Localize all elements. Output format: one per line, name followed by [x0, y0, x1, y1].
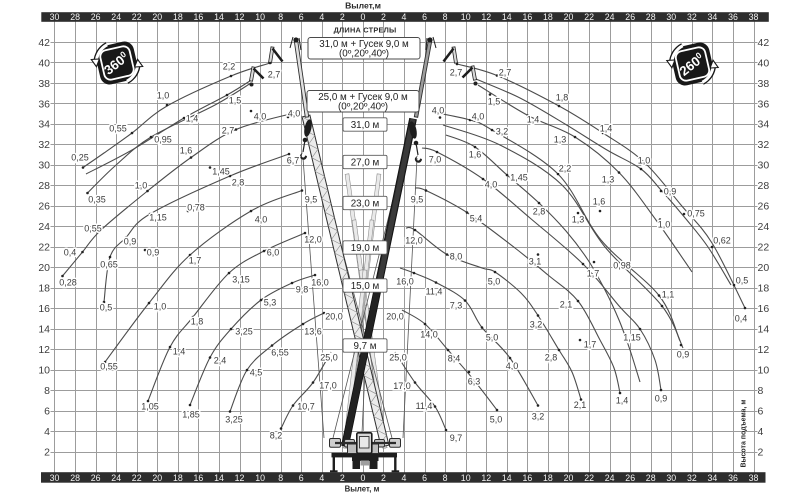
svg-text:40: 40 [758, 57, 770, 69]
svg-text:4: 4 [758, 426, 764, 438]
svg-text:5,3: 5,3 [264, 297, 277, 307]
svg-text:17,0: 17,0 [319, 380, 337, 390]
svg-text:3,15: 3,15 [232, 274, 250, 284]
svg-text:Вылет, м: Вылет, м [345, 485, 380, 494]
svg-text:31,0 м: 31,0 м [351, 120, 380, 131]
svg-text:4,0: 4,0 [506, 361, 519, 371]
svg-text:1,4: 1,4 [173, 346, 186, 356]
svg-text:28: 28 [38, 180, 50, 192]
svg-text:(0º,20º,40º): (0º,20º,40º) [339, 49, 389, 60]
svg-text:32: 32 [687, 473, 697, 483]
svg-text:36: 36 [728, 12, 738, 22]
svg-text:27,0 м: 27,0 м [351, 158, 380, 169]
svg-text:1,45: 1,45 [510, 172, 528, 182]
svg-text:12,0: 12,0 [304, 234, 322, 244]
svg-text:1,3: 1,3 [554, 134, 567, 144]
svg-text:1,8: 1,8 [556, 92, 569, 102]
svg-text:6: 6 [299, 473, 304, 483]
svg-text:28: 28 [646, 473, 656, 483]
svg-text:26: 26 [625, 12, 635, 22]
svg-text:20,0: 20,0 [386, 311, 404, 321]
svg-text:10: 10 [255, 12, 265, 22]
svg-text:2,8: 2,8 [533, 206, 546, 216]
svg-text:30: 30 [38, 160, 50, 172]
svg-text:0,5: 0,5 [736, 275, 749, 285]
svg-text:24: 24 [605, 12, 615, 22]
svg-text:10: 10 [38, 365, 50, 377]
svg-text:16: 16 [38, 303, 50, 315]
svg-text:12: 12 [38, 344, 50, 356]
svg-text:0,55: 0,55 [100, 361, 118, 371]
svg-text:32: 32 [758, 139, 770, 151]
svg-text:26: 26 [91, 473, 101, 483]
svg-text:16,0: 16,0 [396, 276, 414, 286]
svg-text:18: 18 [758, 283, 770, 295]
svg-text:5,0: 5,0 [486, 332, 499, 342]
svg-text:12: 12 [481, 473, 491, 483]
svg-text:4,0: 4,0 [255, 214, 268, 224]
svg-text:2,1: 2,1 [574, 400, 587, 410]
svg-text:14: 14 [214, 12, 224, 22]
svg-text:1,4: 1,4 [600, 123, 613, 133]
svg-text:20: 20 [564, 473, 574, 483]
svg-text:20: 20 [564, 12, 574, 22]
svg-text:11,4: 11,4 [426, 286, 443, 296]
svg-text:0,28: 0,28 [59, 277, 77, 287]
svg-text:22: 22 [758, 242, 770, 254]
svg-text:2,8: 2,8 [232, 177, 245, 187]
svg-text:0,55: 0,55 [109, 123, 127, 133]
svg-text:1,1: 1,1 [662, 289, 675, 299]
svg-text:2,7: 2,7 [268, 69, 281, 79]
svg-text:5,0: 5,0 [490, 414, 503, 424]
svg-text:1,0: 1,0 [154, 301, 167, 311]
svg-text:8: 8 [758, 385, 764, 397]
svg-text:15,0 м: 15,0 м [351, 281, 380, 292]
svg-text:1,15: 1,15 [623, 332, 641, 342]
svg-text:14,0: 14,0 [420, 329, 438, 339]
svg-text:34: 34 [758, 119, 770, 131]
svg-text:0,75: 0,75 [687, 208, 705, 218]
svg-text:22: 22 [132, 12, 142, 22]
svg-text:14: 14 [38, 324, 50, 336]
svg-text:6: 6 [44, 406, 50, 418]
svg-text:9,5: 9,5 [305, 194, 318, 204]
svg-text:1,4: 1,4 [186, 113, 199, 123]
svg-text:16: 16 [758, 303, 770, 315]
svg-text:1,6: 1,6 [469, 149, 482, 159]
svg-text:8: 8 [443, 12, 448, 22]
svg-text:4,0: 4,0 [485, 179, 498, 189]
svg-text:10: 10 [461, 12, 471, 22]
svg-text:20: 20 [152, 12, 162, 22]
svg-text:28: 28 [646, 12, 656, 22]
svg-text:4,0: 4,0 [432, 105, 445, 115]
svg-text:16: 16 [194, 473, 204, 483]
svg-text:2: 2 [340, 473, 345, 483]
svg-text:18: 18 [543, 473, 553, 483]
svg-text:1,3: 1,3 [602, 174, 615, 184]
svg-text:9,7: 9,7 [450, 433, 463, 443]
svg-text:1,45: 1,45 [212, 166, 230, 176]
svg-text:0,95: 0,95 [154, 134, 172, 144]
svg-text:1,3: 1,3 [572, 214, 585, 224]
svg-text:16: 16 [194, 12, 204, 22]
svg-text:4,0: 4,0 [472, 111, 485, 121]
svg-text:25,0: 25,0 [320, 352, 338, 362]
svg-text:8: 8 [443, 473, 448, 483]
svg-text:0,9: 0,9 [147, 247, 160, 257]
svg-text:0,62: 0,62 [713, 235, 731, 245]
svg-text:20: 20 [758, 262, 770, 274]
svg-text:0,78: 0,78 [187, 202, 205, 212]
svg-text:10: 10 [758, 365, 770, 377]
svg-text:0,4: 0,4 [64, 247, 77, 257]
svg-text:25,0: 25,0 [389, 352, 407, 362]
svg-text:1,7: 1,7 [587, 268, 600, 278]
svg-text:42: 42 [38, 37, 50, 49]
svg-text:2,2: 2,2 [559, 163, 572, 173]
svg-text:7,0: 7,0 [429, 154, 442, 164]
svg-text:2: 2 [44, 446, 50, 458]
svg-text:30: 30 [50, 12, 60, 22]
svg-text:1,7: 1,7 [584, 339, 597, 349]
svg-text:0,65: 0,65 [100, 259, 118, 269]
svg-text:22: 22 [38, 242, 50, 254]
svg-text:20: 20 [38, 262, 50, 274]
svg-text:1,7: 1,7 [189, 255, 202, 265]
svg-text:3,1: 3,1 [529, 256, 542, 266]
svg-text:1,5: 1,5 [488, 96, 501, 106]
svg-text:22: 22 [584, 473, 594, 483]
svg-text:6: 6 [758, 406, 764, 418]
svg-text:2,8: 2,8 [545, 352, 558, 362]
svg-text:10: 10 [461, 473, 471, 483]
svg-text:3,2: 3,2 [530, 319, 543, 329]
svg-text:14: 14 [214, 473, 224, 483]
svg-text:0,5: 0,5 [100, 302, 113, 312]
svg-text:5,4: 5,4 [470, 213, 483, 223]
svg-text:6,3: 6,3 [468, 376, 481, 386]
svg-text:42: 42 [758, 37, 770, 49]
svg-text:38: 38 [749, 473, 759, 483]
svg-text:3,25: 3,25 [235, 326, 253, 336]
svg-text:16,0: 16,0 [311, 277, 329, 287]
svg-text:3,2: 3,2 [496, 126, 509, 136]
svg-text:2,7: 2,7 [222, 125, 235, 135]
svg-text:20,0: 20,0 [325, 311, 343, 321]
svg-text:8,0: 8,0 [450, 251, 463, 261]
svg-text:30: 30 [758, 160, 770, 172]
svg-text:12: 12 [758, 344, 770, 356]
svg-text:2: 2 [340, 12, 345, 22]
svg-text:2: 2 [381, 473, 386, 483]
svg-text:26: 26 [91, 12, 101, 22]
svg-text:2,4: 2,4 [214, 355, 227, 365]
svg-text:14: 14 [502, 473, 512, 483]
svg-text:38: 38 [749, 12, 759, 22]
svg-text:0,9: 0,9 [677, 349, 690, 359]
svg-text:14: 14 [758, 324, 770, 336]
svg-text:23,0 м: 23,0 м [351, 199, 380, 210]
svg-text:6: 6 [422, 473, 427, 483]
svg-text:10: 10 [255, 473, 265, 483]
svg-text:1,4: 1,4 [527, 114, 540, 124]
svg-text:19,0 м: 19,0 м [351, 243, 380, 254]
svg-text:4,0: 4,0 [288, 108, 301, 118]
svg-text:8,4: 8,4 [448, 353, 461, 363]
svg-text:0,4: 0,4 [735, 313, 748, 323]
svg-text:38: 38 [758, 78, 770, 90]
svg-text:4,0: 4,0 [254, 111, 267, 121]
svg-text:18: 18 [38, 283, 50, 295]
svg-text:1,6: 1,6 [593, 196, 606, 206]
svg-text:24: 24 [758, 221, 770, 233]
svg-text:2: 2 [758, 446, 764, 458]
svg-text:0: 0 [360, 473, 365, 483]
svg-text:4,5: 4,5 [250, 367, 263, 377]
svg-text:3,2: 3,2 [532, 411, 545, 421]
svg-text:12: 12 [235, 12, 245, 22]
svg-text:14: 14 [502, 12, 512, 22]
svg-text:18: 18 [173, 12, 183, 22]
svg-text:32: 32 [38, 139, 50, 151]
svg-text:16: 16 [523, 12, 533, 22]
svg-text:1,85: 1,85 [182, 409, 200, 419]
svg-text:30: 30 [666, 12, 676, 22]
svg-text:1,15: 1,15 [149, 212, 167, 222]
svg-text:24: 24 [111, 473, 121, 483]
svg-text:34: 34 [708, 473, 718, 483]
svg-text:28: 28 [70, 473, 80, 483]
svg-text:0,9: 0,9 [655, 393, 668, 403]
svg-text:6,7: 6,7 [287, 155, 300, 165]
svg-text:0,25: 0,25 [71, 152, 89, 162]
svg-text:0,9: 0,9 [124, 236, 137, 246]
svg-text:36: 36 [728, 473, 738, 483]
svg-text:13,6: 13,6 [304, 326, 322, 336]
svg-text:24: 24 [605, 473, 615, 483]
svg-text:2,7: 2,7 [499, 67, 512, 77]
svg-text:0,35: 0,35 [88, 194, 106, 204]
svg-text:18: 18 [543, 12, 553, 22]
svg-text:8,2: 8,2 [270, 430, 283, 440]
svg-text:26: 26 [758, 201, 770, 213]
svg-text:ДЛИНА СТРЕЛЫ: ДЛИНА СТРЕЛЫ [334, 25, 397, 34]
svg-text:0,9: 0,9 [664, 186, 677, 196]
svg-text:1,5: 1,5 [229, 95, 242, 105]
svg-text:12,0: 12,0 [405, 235, 423, 245]
svg-text:4: 4 [44, 426, 50, 438]
svg-text:Высота подъема, м: Высота подъема, м [741, 399, 748, 467]
svg-text:1,4: 1,4 [616, 395, 629, 405]
svg-text:8: 8 [278, 12, 283, 22]
svg-text:2: 2 [381, 12, 386, 22]
svg-text:38: 38 [38, 78, 50, 90]
svg-text:12: 12 [481, 12, 491, 22]
svg-text:1,6: 1,6 [180, 145, 193, 155]
svg-text:8: 8 [44, 385, 50, 397]
svg-text:28: 28 [758, 180, 770, 192]
svg-text:1,8: 1,8 [191, 316, 204, 326]
svg-text:1,0: 1,0 [658, 219, 671, 229]
svg-text:0,98: 0,98 [613, 260, 631, 270]
svg-text:4: 4 [402, 12, 407, 22]
svg-text:1,05: 1,05 [141, 401, 159, 411]
svg-text:Вылет,м: Вылет,м [345, 1, 381, 11]
svg-text:9,5: 9,5 [411, 194, 424, 204]
svg-text:40: 40 [38, 57, 50, 69]
svg-text:8: 8 [278, 473, 283, 483]
svg-text:2,1: 2,1 [560, 299, 573, 309]
svg-text:26: 26 [625, 473, 635, 483]
svg-text:10,7: 10,7 [297, 401, 315, 411]
svg-text:(0º,20º,40º): (0º,20º,40º) [338, 102, 388, 113]
svg-text:4: 4 [402, 473, 407, 483]
svg-text:20: 20 [152, 473, 162, 483]
svg-text:6: 6 [299, 12, 304, 22]
svg-text:0,55: 0,55 [84, 223, 102, 233]
svg-text:4: 4 [319, 473, 324, 483]
svg-text:1,0: 1,0 [638, 155, 651, 165]
svg-text:9,8: 9,8 [296, 284, 309, 294]
svg-text:34: 34 [38, 119, 50, 131]
svg-text:11,4: 11,4 [416, 401, 433, 411]
svg-text:6: 6 [422, 12, 427, 22]
svg-text:36: 36 [758, 98, 770, 110]
svg-text:24: 24 [111, 12, 121, 22]
svg-text:17,0: 17,0 [393, 381, 411, 391]
svg-text:22: 22 [132, 473, 142, 483]
svg-text:12: 12 [235, 473, 245, 483]
svg-text:7,3: 7,3 [450, 300, 463, 310]
svg-text:6,55: 6,55 [271, 347, 289, 357]
svg-text:16: 16 [523, 473, 533, 483]
svg-text:2,7: 2,7 [450, 67, 463, 77]
svg-text:32: 32 [687, 12, 697, 22]
svg-text:26: 26 [38, 201, 50, 213]
svg-text:3,25: 3,25 [225, 414, 243, 424]
svg-text:1,0: 1,0 [157, 90, 170, 100]
svg-text:30: 30 [666, 473, 676, 483]
svg-text:2,2: 2,2 [223, 61, 236, 71]
svg-text:28: 28 [70, 12, 80, 22]
svg-text:30: 30 [50, 473, 60, 483]
svg-text:34: 34 [708, 12, 718, 22]
svg-text:5,0: 5,0 [488, 276, 501, 286]
svg-text:6,0: 6,0 [267, 247, 280, 257]
svg-text:18: 18 [173, 473, 183, 483]
svg-text:0: 0 [360, 12, 365, 22]
svg-text:1,0: 1,0 [135, 180, 148, 190]
svg-text:24: 24 [38, 221, 50, 233]
svg-text:22: 22 [584, 12, 594, 22]
svg-text:9,7 м: 9,7 м [353, 341, 376, 352]
svg-text:4: 4 [319, 12, 324, 22]
svg-text:36: 36 [38, 98, 50, 110]
